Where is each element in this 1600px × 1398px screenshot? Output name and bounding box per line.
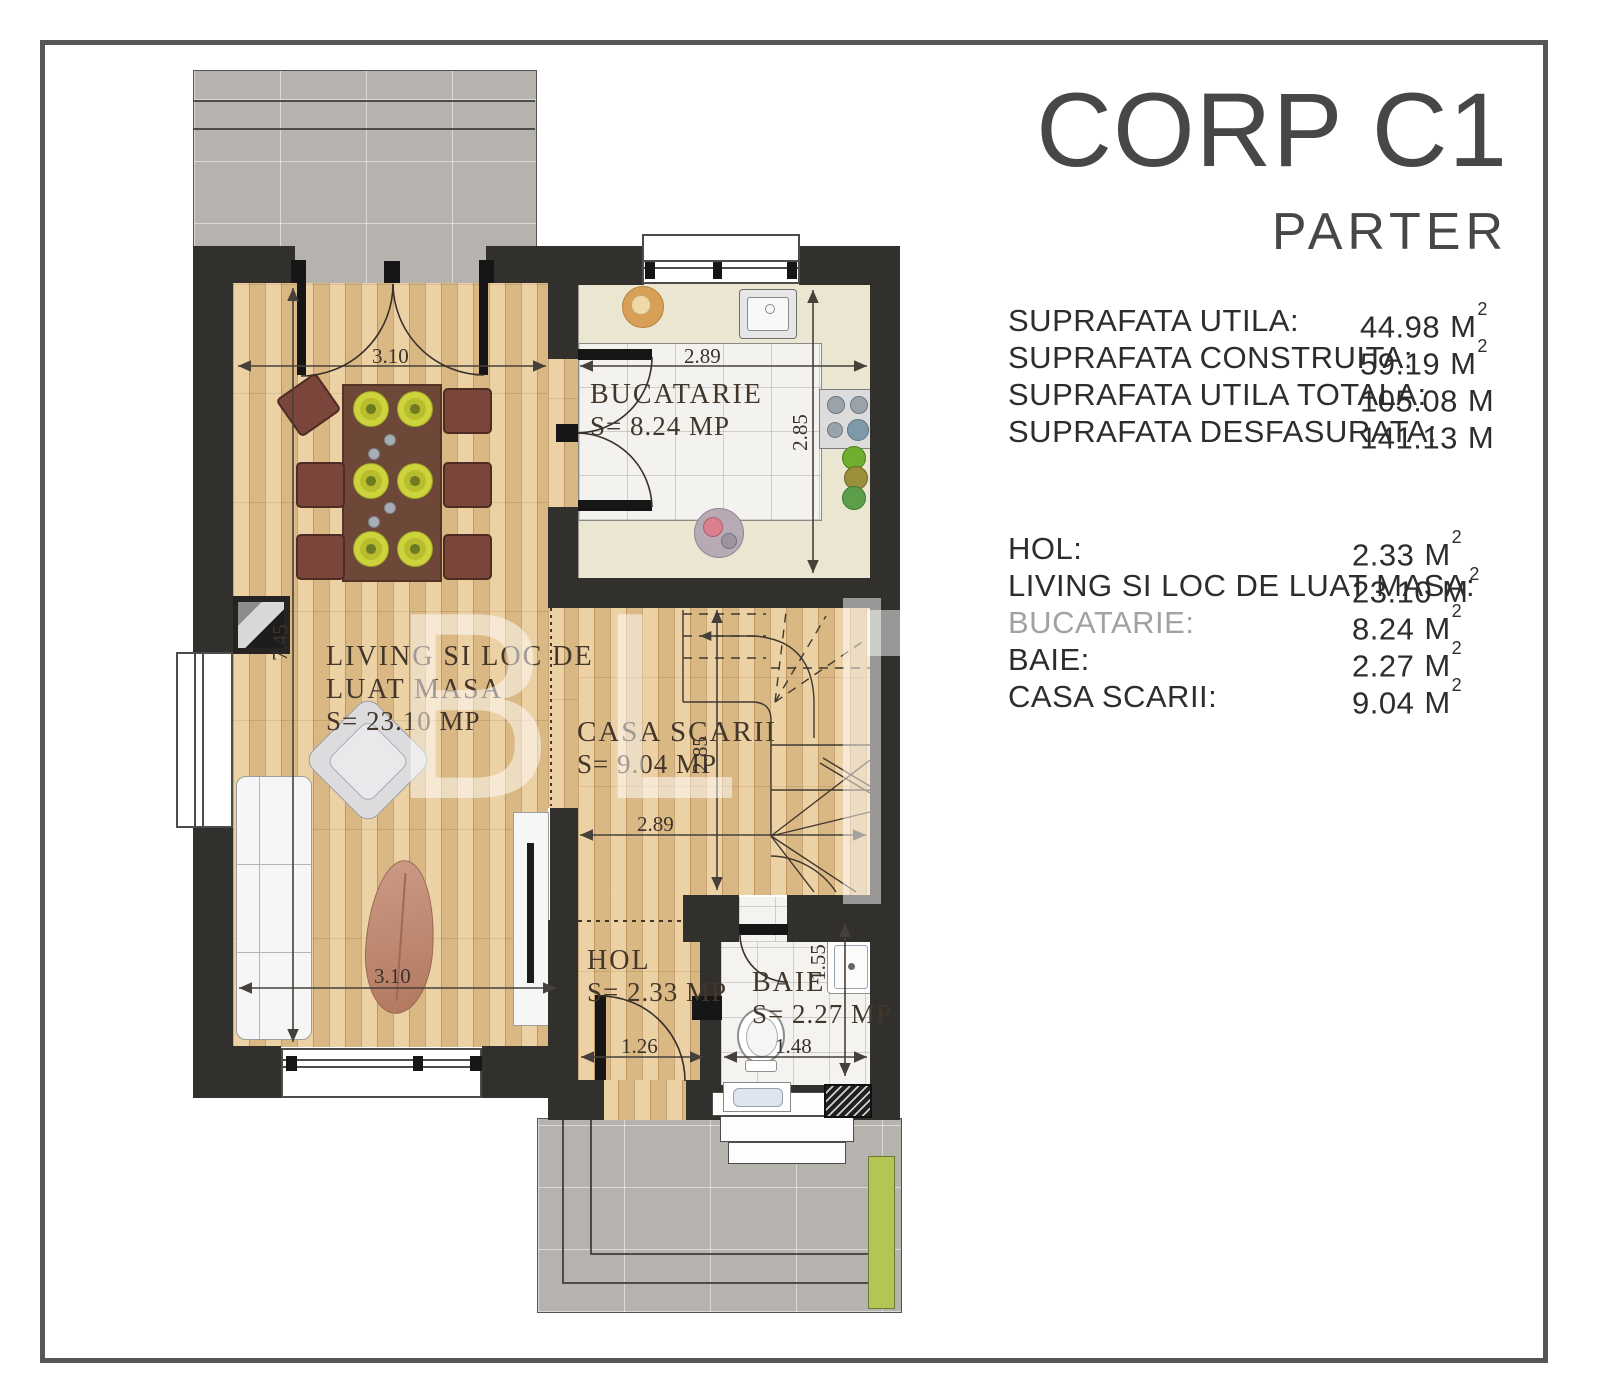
stat-row: SUPRAFATA DESFASURATA: 141.13M: [1008, 413, 1528, 450]
room-area: S= 8.24 MP: [590, 411, 763, 443]
page-subtitle: PARTER: [900, 206, 1508, 258]
dim-label-hol-width: 1.26: [621, 1034, 658, 1059]
stat-label: SUPRAFATA CONSTRUITA:: [1008, 340, 1413, 375]
dim-label-kitchen-width: 2.89: [684, 344, 721, 369]
plate: [397, 391, 433, 427]
cup: [384, 434, 396, 446]
entry-step: [728, 1142, 846, 1164]
wall-segment: [548, 507, 578, 578]
bathroom-door-leaf: [739, 924, 788, 935]
room-label-casa-scarii: CASA SCARII S= 9.04 MP: [577, 715, 777, 781]
cup: [384, 502, 396, 514]
burner: [827, 396, 845, 414]
room-row-label: BAIE:: [1008, 642, 1090, 677]
window-mullion: [645, 262, 655, 279]
doormat: [824, 1084, 872, 1118]
sofa-cushion-line: [237, 864, 311, 865]
room-label-hol: HOL S= 2.33 MP: [587, 944, 727, 1009]
wall-segment: [482, 1046, 548, 1098]
dim-label-baie-width: 1.48: [775, 1034, 812, 1059]
sink-basin: [747, 297, 789, 331]
dining-chair: [443, 462, 492, 508]
dim-label-living-height: 7.45: [268, 624, 293, 661]
room-area: S= 23.10 MP: [326, 706, 594, 738]
door-jamb: [384, 261, 400, 283]
french-door-leaf: [479, 282, 488, 375]
window-glazing-line: [202, 654, 204, 826]
wall-segment: [193, 1046, 281, 1098]
room-row: CASA SCARII: 9.04M2: [1008, 678, 1528, 715]
tv: [527, 843, 534, 983]
room-row: BAIE: 2.27M2: [1008, 641, 1528, 678]
room-row: HOL: 2.33M2: [1008, 530, 1528, 567]
room-label-bucatarie: BUCATARIE S= 8.24 MP: [590, 378, 763, 443]
dim-label-baie-height: 1.55: [806, 944, 831, 981]
table-plate: [721, 533, 737, 549]
terrace-bottom: [537, 1118, 902, 1313]
wall-segment: [193, 246, 233, 658]
cutting-board: [622, 286, 664, 328]
stove: [819, 389, 873, 449]
dim-label-living-bottom: 3.10: [374, 964, 411, 989]
tv-console: [513, 812, 549, 1026]
room-row-value: 9.04M2: [1352, 678, 1462, 721]
stat-label: SUPRAFATA UTILA:: [1008, 303, 1299, 338]
sofa-cushion-line: [237, 952, 311, 953]
cup: [368, 516, 380, 528]
wall-segment: [548, 1080, 604, 1120]
room-area: S= 2.27 MP: [752, 999, 892, 1031]
dim-label-kitchen-height: 2.85: [788, 414, 813, 451]
room-row-label: HOL:: [1008, 531, 1082, 566]
room-row: LIVING SI LOC DE LUAT MASA: 23.10M2: [1008, 567, 1528, 604]
plate: [397, 463, 433, 499]
window-mullion: [787, 262, 797, 279]
stat-row: SUPRAFATA UTILA: 44.98M2: [1008, 302, 1528, 339]
dining-chair: [296, 534, 345, 580]
plate: [353, 531, 389, 567]
sofa-backrest-line: [259, 777, 260, 1039]
wall-segment: [683, 895, 739, 942]
wall-segment: [548, 283, 578, 359]
dim-label-stair-height: 2.85: [688, 736, 713, 773]
window-left: [176, 652, 233, 828]
room-name: HOL: [587, 944, 727, 977]
entry-opening-floor: [602, 1080, 686, 1120]
room-areas-list: HOL: 2.33M2 LIVING SI LOC DE LUAT MASA: …: [1008, 530, 1528, 715]
door-jamb: [291, 260, 306, 283]
wall-segment: [787, 895, 870, 942]
stat-row: SUPRAFATA CONSTRUITA: 59.19M2: [1008, 339, 1528, 376]
room-name: LUAT MASA: [326, 673, 594, 706]
wall-segment: [193, 828, 233, 1050]
wall-segment: [486, 246, 548, 283]
dim-label-stair-width: 2.89: [637, 812, 674, 837]
page-title: CORP C1: [900, 78, 1508, 183]
dim-label-living-top: 3.10: [372, 344, 409, 369]
toilet-base: [745, 1060, 777, 1072]
cup: [368, 448, 380, 460]
window-mullion: [286, 1056, 297, 1071]
burner: [850, 396, 868, 414]
wall-segment: [550, 808, 578, 920]
kitchen-door-leaf: [578, 349, 652, 360]
table-plate: [703, 517, 723, 537]
room-row: BUCATARIE: 8.24M2: [1008, 604, 1528, 641]
dining-chair: [443, 388, 492, 434]
vanity-basin: [733, 1088, 783, 1107]
window-mullion: [713, 262, 722, 279]
kitchen-door-leaf: [578, 500, 652, 511]
dining-chair: [296, 462, 345, 508]
kitchen-sink: [739, 289, 797, 339]
plate: [353, 391, 389, 427]
stat-value: 141.13M: [1360, 413, 1495, 456]
window-mullion: [470, 1056, 482, 1071]
plate: [353, 463, 389, 499]
sofa: [236, 776, 312, 1040]
window-mullion: [413, 1056, 423, 1071]
sink-drain: [765, 304, 775, 314]
room-name: BUCATARIE: [590, 378, 763, 411]
wall-segment: [548, 246, 644, 285]
room-name: CASA SCARII: [577, 715, 777, 749]
room-row-label: BUCATARIE:: [1008, 605, 1194, 640]
door-catch: [556, 424, 578, 442]
room-row-label: CASA SCARII:: [1008, 679, 1217, 714]
kitchen-table: [694, 508, 744, 558]
window-living-bottom: [281, 1048, 482, 1098]
vanity: [723, 1082, 791, 1112]
plate: [397, 531, 433, 567]
room-label-living: LIVING SI LOC DE LUAT MASA S= 23.10 MP: [326, 640, 594, 738]
cutting-board-plate: [631, 295, 651, 315]
french-door-leaf: [297, 282, 306, 375]
entry-step: [720, 1116, 854, 1142]
floor-plan-page: BUCATARIE S= 8.24 MP LIVING SI LOC DE LU…: [0, 0, 1600, 1398]
stat-row: SUPRAFATA UTILA TOTALA: 105.08M: [1008, 376, 1528, 413]
window-glazing-line: [194, 654, 196, 826]
room-area: S= 2.33 MP: [587, 977, 727, 1009]
door-jamb: [479, 260, 494, 283]
bath-door-opening-floor: [739, 897, 787, 942]
grass-strip: [868, 1156, 895, 1309]
wall-segment: [548, 578, 900, 608]
area-stats-list: SUPRAFATA UTILA: 44.98M2 SUPRAFATA CONST…: [1008, 302, 1528, 450]
window-glazing-line: [283, 1059, 480, 1061]
room-name: LIVING SI LOC DE: [326, 640, 594, 673]
window-glazing-line: [283, 1066, 480, 1068]
plant: [842, 486, 866, 510]
burner: [827, 422, 843, 438]
dining-chair: [443, 534, 492, 580]
wall-segment: [686, 1080, 713, 1120]
wall-segment: [548, 920, 578, 1098]
burner: [847, 419, 869, 441]
room-area: S= 9.04 MP: [577, 749, 777, 781]
